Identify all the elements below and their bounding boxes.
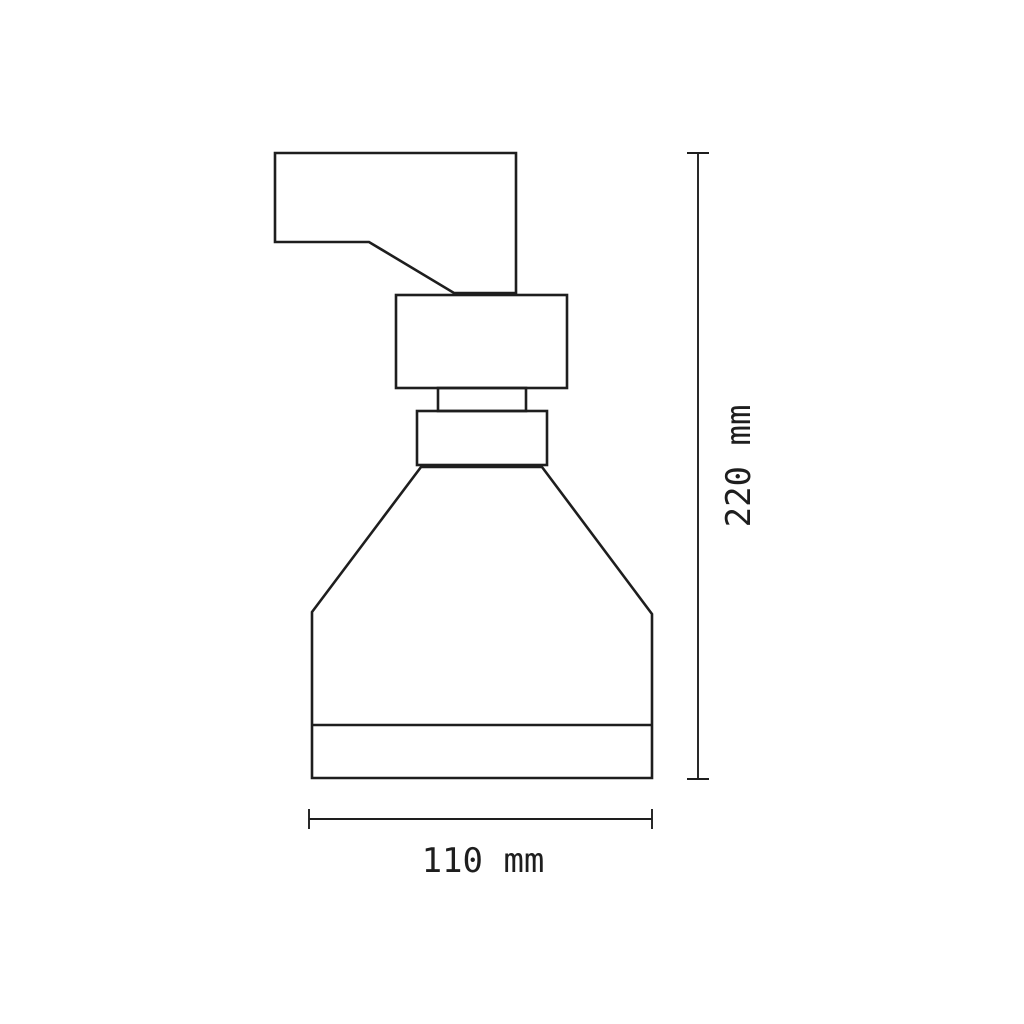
- width-dimension-label: 110 mm: [422, 841, 545, 881]
- mounting-arm-outline: [275, 153, 516, 293]
- drawing-canvas: 220 mm 110 mm: [0, 0, 1024, 1024]
- collar-ring-outline: [417, 411, 547, 465]
- technical-drawing: 220 mm 110 mm: [0, 0, 1024, 1024]
- height-dimension: 220 mm: [687, 153, 759, 779]
- height-dimension-label: 220 mm: [719, 405, 759, 528]
- width-dimension: 110 mm: [309, 809, 652, 881]
- lamp-shade-outline: [312, 467, 652, 778]
- adapter-block-outline: [396, 295, 567, 388]
- neck-outline: [438, 388, 526, 411]
